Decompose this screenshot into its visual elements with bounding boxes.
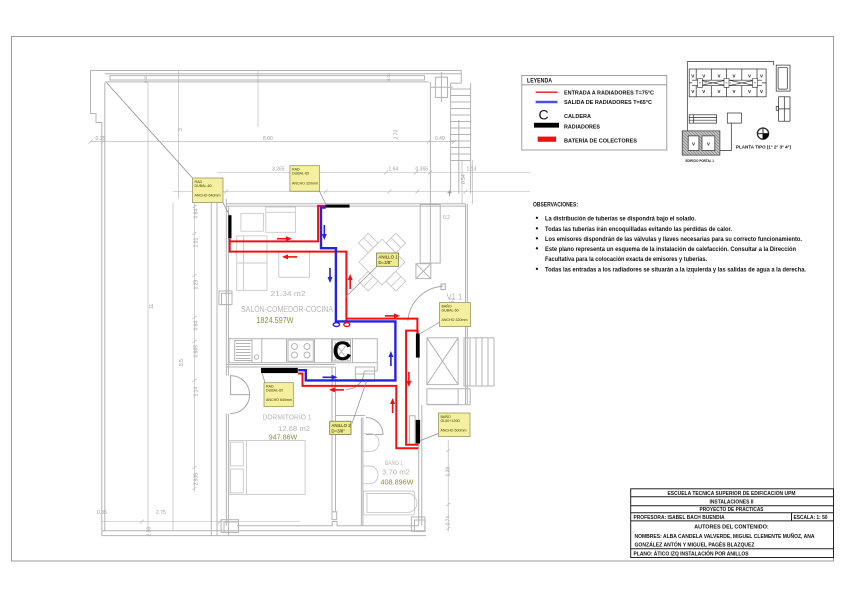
svg-text:La distribución de tuberías se: La distribución de tuberías se dispondrá… (545, 215, 696, 222)
svg-text:V: V (717, 89, 720, 94)
svg-text:ANCHO 640mm: ANCHO 640mm (266, 398, 292, 402)
svg-text:ESCUELA TECNICA SUPERIOR DE ED: ESCUELA TECNICA SUPERIOR DE EDIFICACION … (668, 491, 796, 497)
svg-text:PLANTA TIPO (1° 2° 3° 4°): PLANTA TIPO (1° 2° 3° 4°) (736, 145, 791, 150)
svg-text:•: • (536, 213, 539, 222)
svg-text:SALÓN-COMEDOR-COCINA: SALÓN-COMEDOR-COCINA (241, 305, 334, 314)
svg-text:V: V (732, 89, 735, 94)
svg-text:BATERÍA DE COLECTORES: BATERÍA DE COLECTORES (564, 137, 638, 145)
svg-text:•: • (536, 224, 539, 233)
svg-text:DUBAL-60: DUBAL-60 (195, 184, 212, 188)
svg-text:ANCHO 320mm: ANCHO 320mm (292, 182, 318, 186)
svg-text:Este plano representa un esque: Este plano representa un esquema de la i… (545, 246, 796, 253)
svg-text:8.00: 8.00 (263, 136, 273, 142)
svg-text:ANILLO 1: ANILLO 1 (378, 255, 398, 260)
svg-text:C: C (539, 107, 549, 123)
svg-text:V: V (748, 74, 751, 79)
svg-text:ANCHO 320mm: ANCHO 320mm (442, 318, 468, 322)
svg-text:•: • (536, 264, 539, 273)
svg-text:GONZÁLEZ ANTÓN Y MIGUEL PAGÉS: GONZÁLEZ ANTÓN Y MIGUEL PAGÉS BLAZQUEZ (635, 541, 756, 549)
svg-text:Todas las tuberías irán encoqu: Todas las tuberías irán encoquilladas ev… (545, 226, 732, 233)
svg-text:3: 3 (178, 128, 184, 131)
svg-text:LEYENDA: LEYENDA (527, 79, 553, 85)
svg-text:408.896W: 408.896W (381, 478, 415, 487)
svg-text:1.39: 1.39 (446, 467, 452, 477)
svg-text:V: V (702, 74, 705, 79)
svg-text:2.935: 2.935 (194, 473, 200, 486)
svg-text:2.70: 2.70 (394, 130, 400, 140)
svg-text:12.68 m2: 12.68 m2 (278, 424, 310, 433)
svg-text:21.34 m2: 21.34 m2 (271, 289, 306, 298)
svg-text:Los emisores dispondrán de las: Los emisores dispondrán de las válvulas … (545, 236, 802, 243)
svg-text:EDIFICIO PORTAL 1: EDIFICIO PORTAL 1 (686, 159, 714, 163)
svg-text:V: V (707, 142, 710, 147)
svg-text:DORMITORIO 1: DORMITORIO 1 (263, 413, 312, 422)
svg-text:2.75: 2.75 (156, 510, 166, 516)
svg-text:PROFESORA: ISABEL BACH BUENDIA: PROFESORA: ISABEL BACH BUENDIA (634, 515, 725, 521)
svg-text:1824.597W: 1824.597W (257, 316, 295, 325)
svg-text:D=3/8": D=3/8" (378, 260, 392, 265)
svg-text:0.35: 0.35 (97, 510, 107, 516)
svg-text:0.865: 0.865 (194, 345, 200, 358)
svg-text:OBSERVACIONES:: OBSERVACIONES: (533, 202, 578, 209)
svg-text:DUBAL-60: DUBAL-60 (266, 389, 283, 393)
svg-text:D=3/8": D=3/8" (331, 428, 345, 433)
svg-text:0.49: 0.49 (435, 136, 445, 142)
svg-text:V: V (760, 89, 763, 94)
svg-text:DUBAL-60: DUBAL-60 (442, 309, 459, 313)
svg-text:V: V (760, 74, 763, 79)
svg-text:PROYECTO DE PRACTICAS: PROYECTO DE PRACTICAS (700, 507, 764, 513)
svg-text:V: V (702, 89, 705, 94)
svg-text:CALDERA: CALDERA (564, 114, 591, 120)
svg-text:ESCALA: 1: 50: ESCALA: 1: 50 (794, 515, 828, 521)
svg-text:1.13: 1.13 (467, 167, 477, 173)
svg-text:0.365: 0.365 (416, 167, 429, 173)
svg-text:1.14: 1.14 (194, 387, 200, 397)
svg-text:•: • (536, 244, 539, 253)
svg-text:3.70 m2: 3.70 m2 (382, 469, 410, 476)
svg-text:1.64: 1.64 (389, 167, 399, 173)
svg-text:V: V (691, 74, 694, 79)
svg-text:SALIDA DE RADIADORES T=65°C: SALIDA DE RADIADORES T=65°C (564, 100, 652, 106)
svg-text:V: V (691, 89, 694, 94)
svg-text:0.64: 0.64 (194, 209, 200, 219)
svg-text:ANILLO 2: ANILLO 2 (331, 423, 351, 428)
svg-text:INSTALACIONES II: INSTALACIONES II (710, 499, 754, 505)
svg-text:1.29: 1.29 (194, 280, 200, 290)
svg-text:0.64: 0.64 (194, 321, 200, 331)
svg-text:GL50+120D: GL50+120D (441, 419, 461, 423)
svg-text:0.35: 0.35 (96, 136, 106, 142)
svg-text:V: V (717, 74, 720, 79)
svg-text:V1.1: V1.1 (447, 293, 463, 302)
svg-text:V: V (748, 89, 751, 94)
svg-text:DUBAL-60: DUBAL-60 (292, 172, 309, 176)
svg-text:1.01: 1.01 (194, 238, 200, 248)
svg-text:8.5: 8.5 (179, 359, 185, 366)
svg-text:V: V (692, 142, 695, 147)
svg-text:ANCHO 500mm: ANCHO 500mm (441, 429, 467, 433)
svg-text:0.30: 0.30 (143, 74, 148, 83)
svg-text:Todas las entradas a los radia: Todas las entradas a los radiadores se s… (545, 266, 806, 273)
svg-text:947.86W: 947.86W (269, 433, 298, 442)
svg-text:Facultativa para la colocación: Facultativa para la colocación exacta de… (545, 256, 707, 263)
svg-text:PLANO: ÁTICO IZQ INSTALACIÓN P: PLANO: ÁTICO IZQ INSTALACIÓN POR ANILLOS (634, 550, 749, 558)
svg-text:RADIADORES: RADIADORES (564, 125, 601, 131)
svg-text:0.74: 0.74 (446, 516, 452, 526)
svg-text:3.265: 3.265 (272, 167, 285, 173)
svg-text:AUTORES DEL CONTENIDO:: AUTORES DEL CONTENIDO: (694, 525, 769, 531)
svg-text:11: 11 (149, 304, 155, 309)
svg-text:NOMBRES: ALBA CANDELA VALVERDE: NOMBRES: ALBA CANDELA VALVERDE, MIGUEL C… (635, 533, 815, 540)
svg-text:ENTRADA A RADIADORES T=75°C: ENTRADA A RADIADORES T=75°C (564, 90, 654, 96)
svg-text:•: • (536, 234, 539, 243)
svg-text:0.54: 0.54 (461, 174, 467, 184)
svg-text:BAÑO 1: BAÑO 1 (385, 458, 403, 467)
svg-text:C: C (333, 336, 352, 366)
svg-text:0.2: 0.2 (443, 215, 450, 221)
svg-text:V: V (732, 74, 735, 79)
svg-text:0.20: 0.20 (386, 72, 391, 81)
svg-text:ANCHO 640mm: ANCHO 640mm (195, 194, 221, 198)
svg-text:2.50: 2.50 (147, 527, 153, 537)
